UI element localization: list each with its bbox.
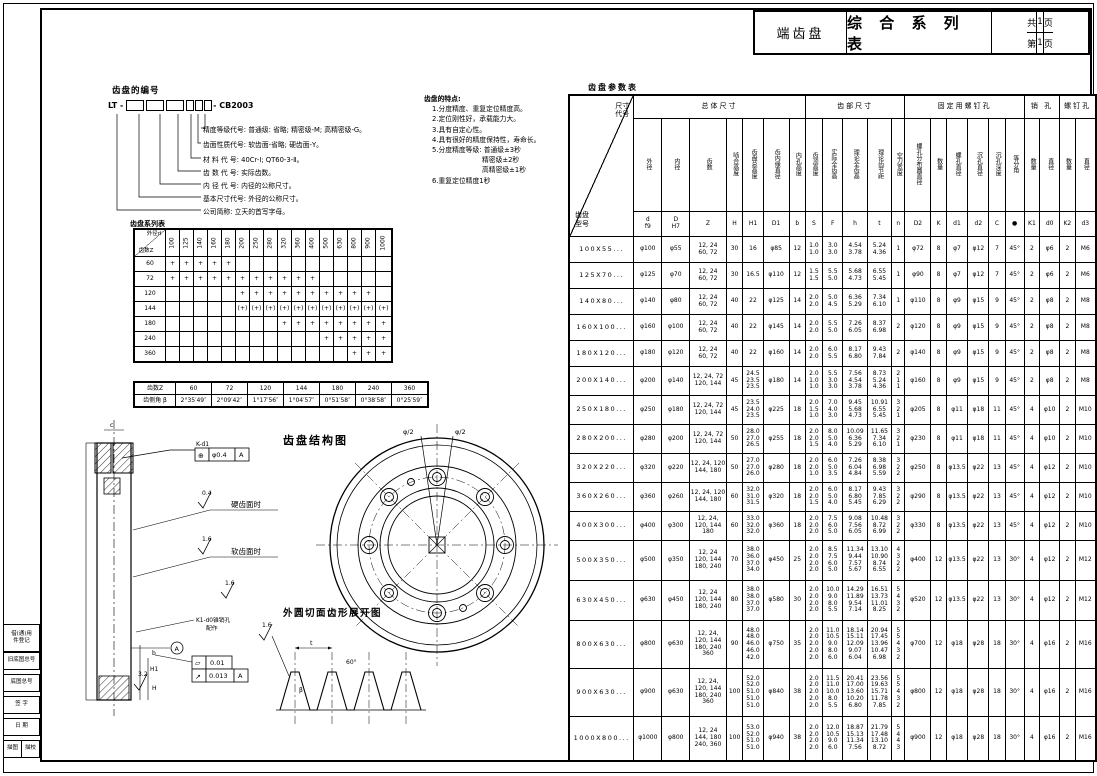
params-value-cell: φ16 (1040, 669, 1060, 717)
params-value-cell: 9 (989, 341, 1005, 367)
params-value-cell: φ11 (946, 425, 968, 454)
params-value-cell: 2.0 2.0 2.0 2.0 (805, 717, 822, 761)
series-mark-cell (376, 287, 393, 302)
params-value-cell: φ15 (968, 341, 989, 367)
params-value-cell: 70 (726, 541, 743, 581)
params-value-cell: φ450 (763, 541, 789, 581)
params-value-cell: φ13.5 (946, 541, 968, 581)
params-data-row: 1000X800...φ1000φ80012, 24 144, 180 240,… (569, 717, 1096, 761)
params-data-row: 360X260...φ360φ26012, 24, 120 144, 18060… (569, 483, 1096, 512)
params-value-cell: 4.54 3.78 (843, 237, 867, 263)
params-value-cell: 2.0 1.0 1.0 (805, 367, 822, 396)
angle-value: 1°04′57″ (284, 395, 320, 408)
params-value-cell: 22 (743, 289, 763, 315)
code-suffix: - CB2003 (213, 101, 253, 110)
params-col-label: 齿顶高度 (805, 119, 822, 212)
params-value-cell: 2.0 1.5 1.0 (805, 396, 822, 425)
params-value-cell: 11 (989, 425, 1005, 454)
params-value-cell: 28.0 27.0 26.5 (743, 425, 763, 454)
params-value-cell: 6.0 5.0 4.0 (823, 483, 843, 512)
params-value-cell: 90 (726, 621, 743, 669)
params-value-cell: 3 2 1 (892, 425, 905, 454)
params-data-row: 800X630...φ800φ63012, 24, 120, 144 180, … (569, 621, 1096, 669)
params-col-code: K1 (1024, 212, 1039, 237)
params-data-row: 320X220...φ320φ22012, 24, 120 144, 18050… (569, 454, 1096, 483)
params-value-cell: 10.09 6.36 5.29 (843, 425, 867, 454)
series-row: 120++++++++++ (134, 287, 392, 302)
params-col-code: d1 (946, 212, 968, 237)
series-mark-cell (264, 257, 278, 272)
params-table-caption: 齿盘参数表 (588, 82, 638, 93)
params-value-cell: 2.0 2.0 2.0 2.0 (805, 541, 822, 581)
params-model-cell: 400X300... (569, 512, 634, 541)
params-col-label: 理论全齿高 (843, 119, 867, 212)
series-mark-cell (222, 317, 236, 332)
params-corner-bottom: 齿盘型号 (574, 211, 590, 228)
params-value-cell: φ22 (968, 512, 989, 541)
series-mark-cell (166, 332, 180, 347)
params-value-cell: 7 (989, 263, 1005, 289)
series-mark-cell: + (376, 347, 393, 363)
series-col-label: 400 (309, 237, 315, 248)
params-value-cell: φ290 (905, 483, 931, 512)
series-mark-cell: (+) (250, 302, 264, 317)
params-value-cell: 100 (726, 717, 743, 761)
series-mark-cell (166, 302, 180, 317)
params-value-cell: M12 (1075, 581, 1096, 621)
params-value-cell: M6 (1075, 263, 1096, 289)
params-model-cell: 140X80... (569, 289, 634, 315)
series-mark-cell (292, 347, 306, 363)
angle-row2-label: 齿侧角 β (134, 395, 176, 408)
series-mark-cell: + (320, 287, 334, 302)
params-value-cell: φ180 (662, 396, 690, 425)
params-value-cell: φ70 (662, 263, 690, 289)
series-mark-cell: + (292, 287, 306, 302)
params-value-cell: 8 (931, 512, 946, 541)
series-mark-cell (264, 332, 278, 347)
params-value-cell: 11.5 11.0 10.0 8.0 5.5 (823, 669, 843, 717)
angle-z-value: 144 (284, 382, 320, 395)
params-value-cell: 18 (789, 512, 805, 541)
series-mark-cell (208, 287, 222, 302)
params-value-cell: 8.38 6.98 5.59 (867, 454, 891, 483)
series-mark-cell: + (292, 272, 306, 287)
params-group-header: 固定用螺钉孔 (905, 95, 1024, 119)
params-value-cell: 7.34 6.10 (867, 289, 891, 315)
params-value-cell: 14.29 11.89 9.54 7.14 (843, 581, 867, 621)
series-col-label: 1000 (381, 235, 387, 250)
params-value-cell: 4 (1024, 512, 1039, 541)
params-value-cell: φ630 (634, 581, 662, 621)
numbering-item: 材 料 代 号: 40Cr-Ⅰ; QT60-3-Ⅱ。 (203, 154, 303, 164)
params-value-cell: φ180 (763, 367, 789, 396)
series-mark-cell (250, 347, 264, 363)
params-value-cell: 2 (1060, 621, 1075, 669)
series-mark-cell: + (362, 347, 376, 363)
params-value-cell: 12, 24, 120, 144 180, 240 360 (690, 669, 727, 717)
params-value-cell: φ11 (946, 396, 968, 425)
params-value-cell: φ10 (1040, 396, 1060, 425)
params-value-cell: 38.0 38.0 37.0 37.0 (743, 581, 763, 621)
params-value-cell: φ320 (763, 483, 789, 512)
params-value-cell: φ9 (946, 289, 968, 315)
params-value-cell: φ15 (968, 289, 989, 315)
series-mark-cell (250, 332, 264, 347)
params-value-cell: 4 (1024, 541, 1039, 581)
params-value-cell: 2.0 2.0 1.5 (805, 425, 822, 454)
params-model-cell: 900X630... (569, 669, 634, 717)
params-value-cell: 30° (1005, 621, 1024, 669)
series-mark-cell: + (348, 317, 362, 332)
series-mark-cell (320, 347, 334, 363)
params-value-cell: 8 (931, 367, 946, 396)
series-mark-cell: (+) (278, 302, 292, 317)
params-value-cell: 40 (726, 289, 743, 315)
params-col-code: t (867, 212, 891, 237)
params-value-cell: 18 (789, 483, 805, 512)
params-value-cell: 2 (1060, 581, 1075, 621)
params-value-cell: φ300 (662, 512, 690, 541)
params-value-cell: 13 (989, 483, 1005, 512)
params-col-label: 内孔高度 (789, 119, 805, 212)
series-mark-cell (180, 317, 194, 332)
params-value-cell: φ330 (905, 512, 931, 541)
drawing-sheet: K-d1 ⊕ φ0.4 A 0.4 硬齿面时 1.6 软齿面时 1.6 3.2 (0, 0, 1097, 776)
params-col-label-text: 理论全齿高 (852, 149, 858, 179)
series-mark-cell: + (362, 287, 376, 302)
total-pages-value: 1 (1037, 12, 1044, 32)
series-row: 240+++++ (134, 332, 392, 347)
params-col-label: 内径 (662, 119, 690, 212)
series-mark-cell (334, 347, 348, 363)
params-model-cell: 200X140... (569, 367, 634, 396)
series-mark-cell (292, 332, 306, 347)
params-data-row: 280X200...φ280φ20012, 24, 72 120, 144502… (569, 425, 1096, 454)
params-value-cell: φ700 (905, 621, 931, 669)
params-value-cell: 12 (931, 581, 946, 621)
tooth-angle-table: 齿数Z6072120144180240360齿侧角 β2°35′49″2°09′… (133, 381, 429, 408)
params-data-row: 250X180...φ250φ18012, 24, 72 120, 144452… (569, 396, 1096, 425)
params-value-cell: 45° (1005, 425, 1024, 454)
params-value-cell: φ12 (1040, 581, 1060, 621)
params-model-cell: 360X260... (569, 483, 634, 512)
series-mark-cell: + (348, 332, 362, 347)
params-value-cell: 18.87 15.13 11.34 7.56 (843, 717, 867, 761)
params-value-cell: 38 (789, 669, 805, 717)
params-col-label: 数量 (931, 119, 946, 212)
params-value-cell: φ140 (662, 367, 690, 396)
params-value-cell: 2 (892, 341, 905, 367)
params-value-cell: 45 (726, 396, 743, 425)
params-value-cell: φ18 (946, 669, 968, 717)
params-data-row: 400X300...φ400φ30012, 24, 120, 144 18060… (569, 512, 1096, 541)
params-value-cell: 11.34 9.44 7.57 5.67 (843, 541, 867, 581)
params-value-cell: 1 (892, 237, 905, 263)
params-value-cell: M10 (1075, 483, 1096, 512)
params-col-code: H (726, 212, 743, 237)
params-value-cell: 8.0 5.0 4.0 (823, 425, 843, 454)
params-col-label: 螺孔直径 (946, 119, 968, 212)
series-col-header: 400 (306, 229, 320, 257)
params-value-cell: φ750 (763, 621, 789, 669)
params-value-cell: φ12 (968, 237, 989, 263)
params-value-cell: 12, 24, 120 144, 180 (690, 454, 727, 483)
series-mark-cell: + (348, 347, 362, 363)
product-name: 端齿盘 (755, 12, 847, 53)
params-value-cell: 45° (1005, 396, 1024, 425)
params-col-label: 沉孔直径 (968, 119, 989, 212)
params-value-cell: 7.0 4.0 3.0 (823, 396, 843, 425)
series-mark-cell (236, 332, 250, 347)
series-mark-cell: + (222, 257, 236, 272)
series-col-header: 800 (348, 229, 362, 257)
params-value-cell: φ28 (968, 717, 989, 761)
params-value-cell: 7 (989, 237, 1005, 263)
params-value-cell: φ13.5 (946, 483, 968, 512)
params-value-cell: φ8 (1040, 315, 1060, 341)
total-pages-unit: 页 (1044, 12, 1053, 32)
params-value-cell: M8 (1075, 289, 1096, 315)
params-value-cell: φ15 (968, 367, 989, 396)
params-value-cell: 2 (1024, 341, 1039, 367)
params-value-cell: 12, 24 120, 144 180, 240 (690, 581, 727, 621)
series-col-label: 800 (351, 237, 357, 248)
params-value-cell: φ13.5 (946, 581, 968, 621)
params-value-cell: 13 (989, 454, 1005, 483)
params-value-cell: φ12 (1040, 483, 1060, 512)
params-value-cell: φ72 (905, 237, 931, 263)
series-col-label: 250 (253, 237, 259, 248)
current-page-unit: 页 (1044, 33, 1053, 53)
params-data-row: 125X70...φ125φ7012, 24 60, 723016.5φ1101… (569, 263, 1096, 289)
params-model-cell: 500X350... (569, 541, 634, 581)
series-mark-cell (194, 317, 208, 332)
params-value-cell: 25 (789, 541, 805, 581)
params-value-cell: 30° (1005, 581, 1024, 621)
params-value-cell: 60 (726, 483, 743, 512)
params-col-label-text: 直径 (1082, 158, 1088, 170)
params-value-cell: 40 (726, 341, 743, 367)
params-value-cell: φ225 (763, 396, 789, 425)
params-col-label: 齿数 (690, 119, 727, 212)
series-col-header: 360 (292, 229, 306, 257)
params-value-cell: 12, 24, 120 144, 180 (690, 483, 727, 512)
params-value-cell: 2 (1060, 289, 1075, 315)
params-value-cell: 12, 24, 120, 144 180 (690, 512, 727, 541)
series-mark-cell: + (180, 272, 194, 287)
series-mark-cell (306, 257, 320, 272)
params-value-cell: φ16 (1040, 717, 1060, 761)
params-value-cell: 8.17 6.80 (843, 341, 867, 367)
params-col-label: 齿盘总高度 (743, 119, 763, 212)
series-mark-cell (194, 287, 208, 302)
params-value-cell: 5.68 4.73 (843, 263, 867, 289)
params-value-cell: 2 (1060, 717, 1075, 761)
margin-row: 旧底图总号 (3, 652, 40, 670)
series-mark-cell: + (236, 272, 250, 287)
params-col-label: 直径 (1075, 119, 1096, 212)
params-col-label: 理论齿节距 (867, 119, 891, 212)
params-model-cell: 160X100... (569, 315, 634, 341)
series-mark-cell: (+) (306, 302, 320, 317)
params-value-cell: 16.51 13.73 11.01 8.25 (867, 581, 891, 621)
series-col-label: 125 (183, 237, 189, 248)
series-mark-cell (334, 257, 348, 272)
series-col-header: 160 (208, 229, 222, 257)
params-value-cell: 35 (789, 621, 805, 669)
series-mark-cell (320, 257, 334, 272)
params-value-cell: M10 (1075, 454, 1096, 483)
margin-split-cell: 描图 (4, 741, 22, 757)
params-col-label: 螺孔分布圆直径 (905, 119, 931, 212)
series-col-header: 125 (180, 229, 194, 257)
series-row: 60+++++ (134, 257, 392, 272)
numbering-item: 基本尺寸代号: 外径的公称尺寸。 (203, 193, 303, 203)
params-value-cell: φ160 (905, 367, 931, 396)
numbering-heading: 齿盘的编号 (112, 84, 160, 96)
series-mark-cell (376, 257, 393, 272)
series-col-label: 500 (323, 237, 329, 248)
params-value-cell: 100 (726, 669, 743, 717)
params-col-label-text: 齿数 (705, 158, 711, 170)
angle-value: 2°09′42″ (212, 395, 248, 408)
params-value-cell: φ7 (946, 237, 968, 263)
params-value-cell: 30° (1005, 717, 1024, 761)
series-mark-cell: + (194, 272, 208, 287)
params-value-cell: 45° (1005, 512, 1024, 541)
title-block: 端齿盘 综 合 系 列 表 共 1 页 第 1 页 (753, 10, 1090, 55)
params-model-cell: 1000X800... (569, 717, 634, 761)
params-col-code: b (789, 212, 805, 237)
params-value-cell: φ230 (905, 425, 931, 454)
params-value-cell: 4 3 2 2 (892, 541, 905, 581)
series-table: 外径d齿数Z1001251401601802002502803203604005… (133, 228, 393, 363)
params-value-cell: 9.45 5.68 4.73 (843, 396, 867, 425)
params-value-cell: 8 (931, 425, 946, 454)
params-value-cell: 12, 24 60, 72 (690, 289, 727, 315)
params-value-cell: φ8 (1040, 367, 1060, 396)
params-model-cell: 320X220... (569, 454, 634, 483)
series-mark-cell: + (376, 317, 393, 332)
series-mark-cell: (+) (334, 302, 348, 317)
series-mark-cell (236, 347, 250, 363)
params-value-cell: 48.0 48.0 46.0 46.0 42.0 (743, 621, 763, 669)
params-value-cell: φ13.5 (946, 512, 968, 541)
margin-row: 签 字 (3, 696, 40, 714)
params-value-cell: 13 (989, 581, 1005, 621)
series-col-header: 500 (320, 229, 334, 257)
numbering-item: 精度等级代号: 普通级: 省略; 精密级-M; 高精密级-G。 (203, 124, 366, 134)
series-mark-cell: + (334, 332, 348, 347)
params-data-row: 140X80...φ140φ8012, 24 60, 724022φ125142… (569, 289, 1096, 315)
params-value-cell: φ9 (946, 367, 968, 396)
params-value-cell: φ400 (634, 512, 662, 541)
params-value-cell: φ10 (1040, 425, 1060, 454)
angle-value: 0°51′58″ (320, 395, 356, 408)
params-value-cell: 12, 24, 120, 144 180, 240 360 (690, 621, 727, 669)
params-col-label-text: 外径 (645, 158, 651, 170)
angle-header-row: 齿数Z6072120144180240360 (134, 382, 428, 395)
series-col-label: 180 (225, 237, 231, 248)
series-mark-cell: + (222, 272, 236, 287)
params-value-cell: 14 (789, 367, 805, 396)
params-value-cell: 2 (1060, 396, 1075, 425)
params-value-cell: φ15 (968, 315, 989, 341)
angle-row1-label: 齿数Z (134, 382, 176, 395)
params-col-label-text: 数量 (935, 158, 941, 170)
series-col-label: 630 (337, 237, 343, 248)
params-col-label: 实际全齿高 (823, 119, 843, 212)
params-value-cell: M8 (1075, 367, 1096, 396)
params-value-cell: 14 (789, 289, 805, 315)
series-row-label: 144 (134, 302, 166, 317)
params-value-cell: 2 (1024, 367, 1039, 396)
params-col-label: 啮合高度 (726, 119, 743, 212)
params-value-cell: 45° (1005, 237, 1024, 263)
series-row-label: 120 (134, 287, 166, 302)
params-value-cell: φ6 (1040, 237, 1060, 263)
params-value-cell: 12 (931, 541, 946, 581)
params-value-cell: 18 (989, 621, 1005, 669)
params-col-label: 数量 (1060, 119, 1075, 212)
params-value-cell: 14 (789, 315, 805, 341)
params-value-cell: 5.5 3.0 3.0 (823, 367, 843, 396)
series-col-label: 360 (295, 237, 301, 248)
params-value-cell: 12, 24, 72 120, 144 (690, 396, 727, 425)
code-box-face (195, 100, 203, 111)
params-col-code: D2 (905, 212, 931, 237)
series-mark-cell: + (362, 332, 376, 347)
params-value-cell: 3.0 3.0 (823, 237, 843, 263)
params-value-cell: 23.56 19.63 15.71 11.78 7.85 (867, 669, 891, 717)
params-col-label-text: 直径 (1047, 158, 1053, 170)
series-mark-cell: + (250, 287, 264, 302)
params-value-cell: 9.08 7.56 6.05 (843, 512, 867, 541)
params-value-cell: 2 (1060, 237, 1075, 263)
params-value-cell: 30° (1005, 541, 1024, 581)
params-value-cell: 30 (726, 237, 743, 263)
series-mark-cell: (+) (362, 302, 376, 317)
series-mark-cell (264, 317, 278, 332)
code-prefix: LT - (108, 101, 123, 110)
params-col-code: K2 (1060, 212, 1075, 237)
series-mark-cell: + (166, 257, 180, 272)
params-value-cell: 2 (1060, 367, 1075, 396)
params-col-code: d0 (1040, 212, 1060, 237)
params-col-code: F (823, 212, 843, 237)
params-value-cell: φ140 (905, 341, 931, 367)
params-col-label-text: 齿顶高度 (811, 152, 817, 176)
params-value-cell: φ630 (662, 621, 690, 669)
params-value-cell: φ900 (905, 717, 931, 761)
code-box-bore (146, 100, 164, 111)
params-value-cell: 12, 24 60, 72 (690, 263, 727, 289)
params-data-row: 900X630...φ900φ63012, 24, 120, 144 180, … (569, 669, 1096, 717)
series-mark-cell (194, 302, 208, 317)
params-value-cell: 2 (1060, 315, 1075, 341)
params-data-row: 180X120...φ180φ12012, 24 60, 724022φ1601… (569, 341, 1096, 367)
params-value-cell: φ6 (1040, 263, 1060, 289)
params-value-cell: 8.17 6.80 5.45 (843, 483, 867, 512)
params-value-cell: φ840 (763, 669, 789, 717)
params-value-cell: φ18 (946, 717, 968, 761)
params-value-cell: 14 (789, 341, 805, 367)
params-value-cell: 8.73 5.24 4.36 (867, 367, 891, 396)
series-mark-cell (292, 257, 306, 272)
series-mark-cell (166, 287, 180, 302)
params-value-cell: φ250 (634, 396, 662, 425)
